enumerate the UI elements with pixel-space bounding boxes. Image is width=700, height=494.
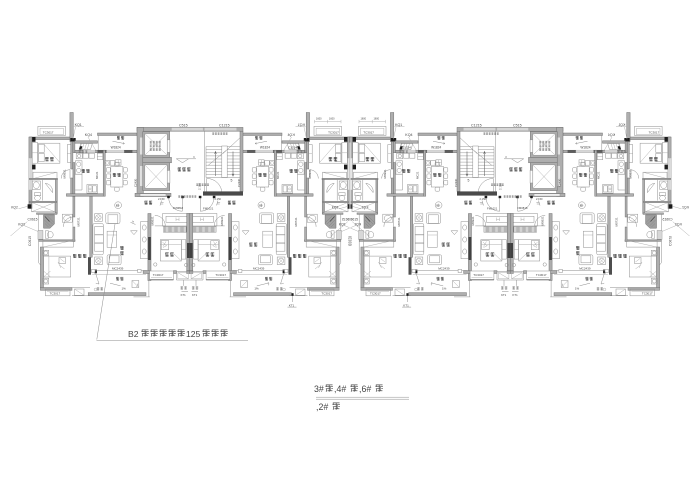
svg-text:KT1: KT1 — [403, 303, 409, 307]
svg-text:125: 125 — [186, 329, 201, 339]
svg-text:W1824: W1824 — [431, 145, 441, 149]
svg-text:1%: 1% — [442, 286, 447, 290]
svg-text:2.150: 2.150 — [536, 197, 543, 201]
svg-text:TC3017: TC3017 — [50, 291, 61, 295]
svg-text:C1215: C1215 — [471, 123, 482, 127]
svg-text:MC21: MC21 — [276, 171, 280, 179]
svg-text:5: 5 — [468, 179, 470, 183]
svg-text:KT1: KT1 — [192, 293, 198, 297]
svg-text:5: 5 — [231, 179, 233, 183]
svg-text:MC21: MC21 — [95, 171, 99, 179]
svg-text:KT1: KT1 — [181, 293, 187, 297]
svg-text:3#: 3# — [314, 384, 324, 394]
svg-text:M0921: M0921 — [63, 169, 67, 179]
svg-text:E2: E2 — [580, 203, 584, 207]
svg-text:FM1021: FM1021 — [487, 207, 498, 211]
svg-text:TC3017: TC3017 — [215, 273, 226, 277]
svg-text:C2430: C2430 — [558, 178, 562, 187]
svg-text:W1824: W1824 — [580, 145, 590, 149]
svg-text:E2: E2 — [116, 203, 120, 207]
svg-text:TC3017: TC3017 — [536, 273, 547, 277]
svg-text:FM1021: FM1021 — [203, 207, 214, 211]
svg-text:TC3017: TC3017 — [43, 131, 54, 135]
svg-text:M0921: M0921 — [541, 216, 545, 226]
svg-text:TC3017: TC3017 — [642, 291, 653, 295]
svg-text:2.150: 2.150 — [215, 197, 222, 201]
svg-text:KT1: KT1 — [513, 293, 519, 297]
svg-text:TC3017: TC3017 — [153, 273, 164, 277]
svg-text:TC3017: TC3017 — [473, 273, 484, 277]
svg-text:C515: C515 — [179, 123, 188, 127]
svg-text:1%: 1% — [575, 286, 580, 290]
svg-text:W1824: W1824 — [111, 145, 121, 149]
svg-text:MC21: MC21 — [596, 171, 600, 179]
svg-text:E2: E2 — [436, 203, 440, 207]
svg-text:,6#: ,6# — [359, 384, 371, 394]
svg-text:C1524: C1524 — [402, 145, 411, 149]
svg-text:C515: C515 — [513, 123, 522, 127]
svg-text:TC3017: TC3017 — [363, 131, 374, 135]
svg-text:,2#: ,2# — [316, 402, 328, 412]
svg-text:FM0818: FM0818 — [517, 206, 528, 210]
svg-text:1%: 1% — [254, 286, 259, 290]
svg-text:C1215: C1215 — [219, 123, 230, 127]
svg-text:,4#: ,4# — [334, 384, 346, 394]
svg-text:KT1: KT1 — [289, 303, 295, 307]
svg-text:C2430: C2430 — [237, 178, 241, 187]
svg-text:M0721: M0721 — [77, 217, 81, 227]
svg-text:MC2439: MC2439 — [438, 267, 450, 271]
svg-text:M0721: M0721 — [615, 217, 619, 227]
svg-text:KT1: KT1 — [501, 293, 507, 297]
svg-text:M0921: M0921 — [383, 169, 387, 179]
svg-text:B2: B2 — [128, 329, 139, 339]
svg-text:C1524: C1524 — [288, 145, 297, 149]
svg-text:FM0818: FM0818 — [173, 206, 184, 210]
svg-text:MC21: MC21 — [415, 171, 419, 179]
svg-text:2.150: 2.150 — [480, 197, 487, 201]
svg-text:M0921: M0921 — [151, 216, 155, 226]
svg-text:E2: E2 — [259, 203, 263, 207]
svg-text:1%: 1% — [122, 286, 127, 290]
svg-text:W1824: W1824 — [260, 145, 270, 149]
svg-text:M0921: M0921 — [220, 216, 224, 226]
svg-text:1600: 1600 — [374, 118, 380, 121]
svg-text:TC3017: TC3017 — [370, 291, 381, 295]
svg-text:MC2439: MC2439 — [112, 267, 124, 271]
svg-text:1600: 1600 — [329, 118, 335, 121]
svg-text:M0921: M0921 — [308, 169, 312, 179]
svg-text:TC3017: TC3017 — [328, 131, 339, 135]
svg-text:C2430: C2430 — [134, 178, 138, 187]
svg-text:MC2439: MC2439 — [579, 267, 591, 271]
svg-text:M0921: M0921 — [629, 169, 633, 179]
svg-text:MC2439: MC2439 — [253, 267, 265, 271]
svg-text:2.150: 2.150 — [158, 197, 165, 201]
svg-text:M0921: M0921 — [471, 216, 475, 226]
svg-text:TC3017: TC3017 — [649, 131, 660, 135]
svg-text:M0721: M0721 — [397, 217, 401, 227]
svg-text:1600: 1600 — [361, 118, 367, 121]
svg-text:M0721: M0721 — [294, 217, 298, 227]
svg-text:TC3017: TC3017 — [321, 291, 332, 295]
svg-text:1600: 1600 — [316, 118, 322, 121]
svg-text:C2430: C2430 — [454, 178, 458, 187]
